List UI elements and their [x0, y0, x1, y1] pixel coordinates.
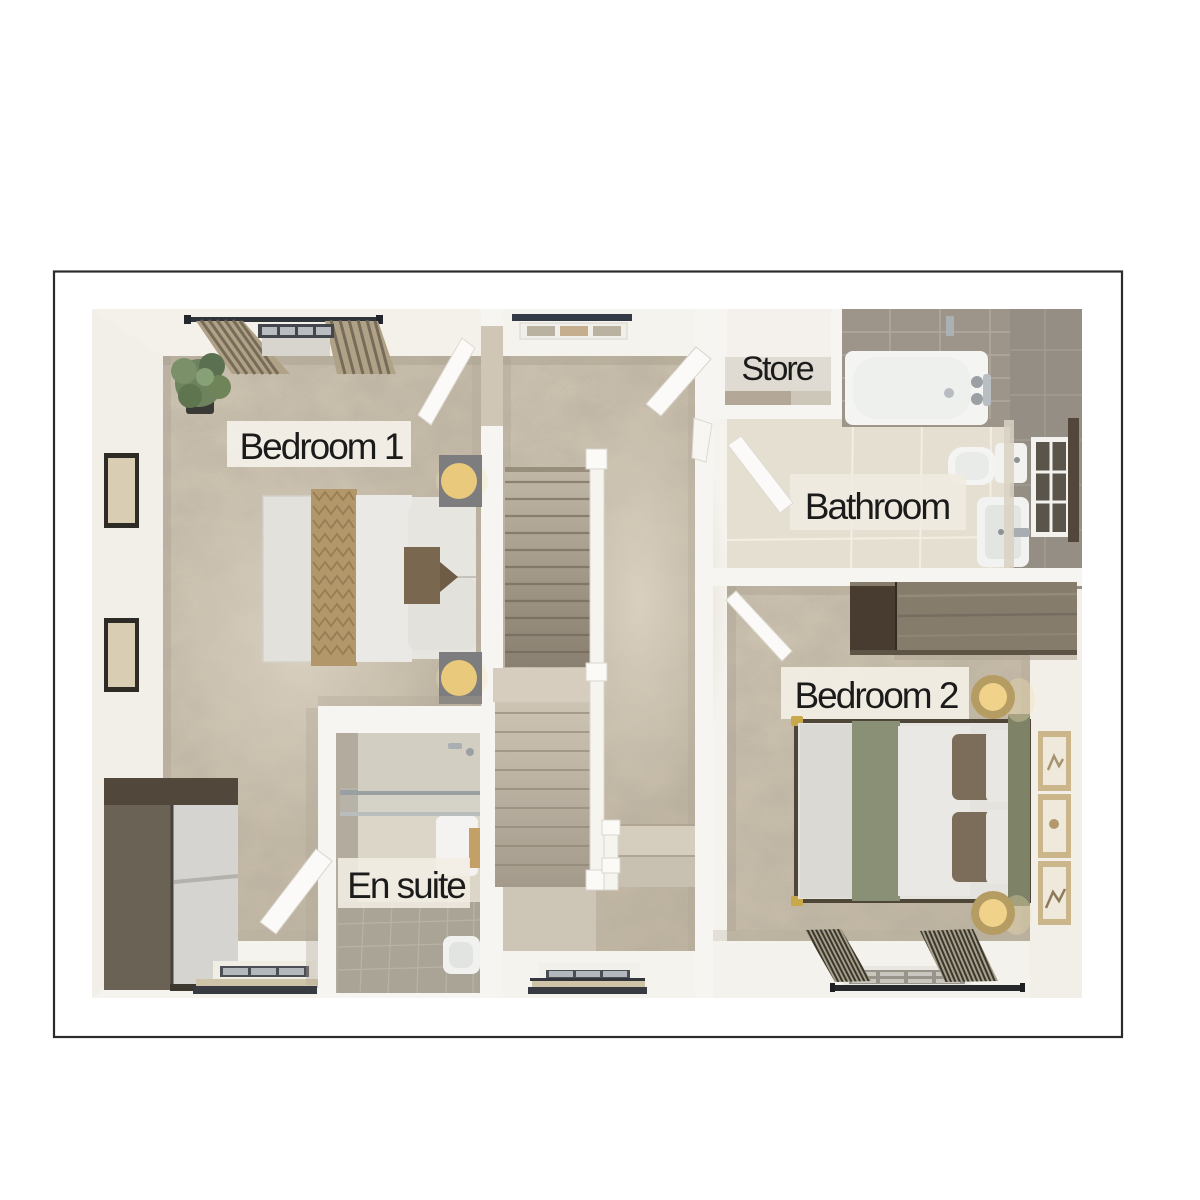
- svg-text:Bathroom: Bathroom: [805, 486, 950, 527]
- svg-text:Store: Store: [741, 350, 813, 388]
- svg-text:Bedroom 1: Bedroom 1: [240, 426, 403, 467]
- svg-text:Bedroom 2: Bedroom 2: [795, 675, 958, 716]
- svg-text:En suite: En suite: [347, 865, 465, 906]
